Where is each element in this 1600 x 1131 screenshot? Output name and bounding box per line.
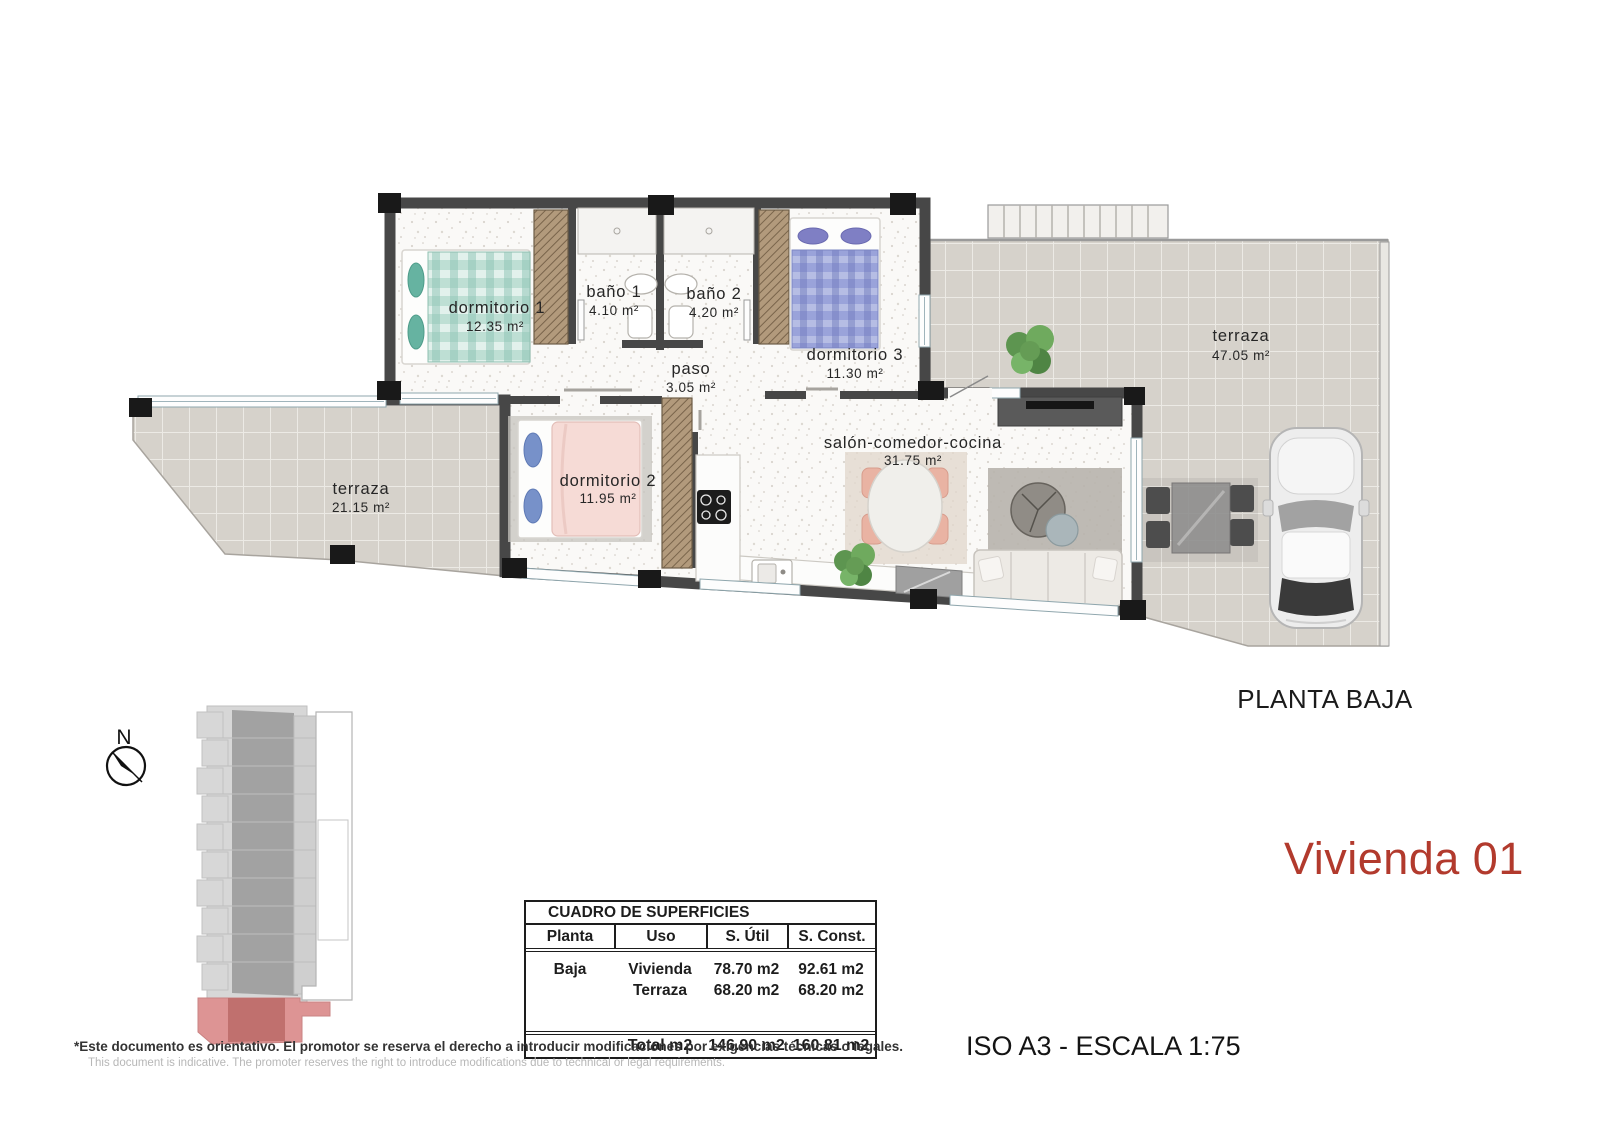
table-row: Baja Vivienda 78.70 m2 92.61 m2: [526, 959, 875, 980]
surface-table-body: Baja Vivienda 78.70 m2 92.61 m2 Terraza …: [526, 952, 875, 1031]
window-dorm1-bottom: [400, 393, 498, 404]
bed3-duvet: [792, 250, 878, 348]
compass: N: [107, 726, 145, 785]
outdoor-dining-set: [1140, 478, 1258, 562]
bed3-pillow-a: [798, 228, 828, 244]
bathroom1-door-leaf: [578, 300, 584, 340]
sofa-pillow-right: [1092, 556, 1117, 581]
stairs: [988, 205, 1168, 238]
room-area-dormitorio-3: 11.30 m²: [826, 366, 883, 381]
pillar: [129, 398, 152, 417]
wardrobe-dorm2: [662, 398, 692, 568]
siteplan-step: [202, 964, 228, 990]
floor-title: PLANTA BAJA: [1230, 684, 1420, 715]
table-row: Terraza 68.20 m2 68.20 m2: [526, 980, 875, 1001]
col-header-sutil: S. Útil: [706, 925, 787, 948]
cell-const: 92.61 m2: [787, 959, 875, 980]
cell-planta: [526, 980, 614, 1001]
siteplan-dark-column: [232, 710, 298, 996]
kitchen-sink-basin: [758, 564, 776, 583]
pillar: [910, 589, 937, 609]
siteplan-step: [197, 712, 223, 738]
outdoor-chair-2: [1146, 521, 1170, 548]
cell-util: 68.20 m2: [706, 980, 787, 1001]
site-plan: [197, 706, 352, 1044]
compass-north-label: N: [116, 726, 131, 749]
room-area-bano-1: 4.10 m²: [589, 303, 639, 318]
door-opening: [948, 388, 992, 399]
room-label-salon: salón-comedor-cocina: [824, 434, 1002, 452]
plant-leaf: [846, 557, 864, 575]
outdoor-chair-1: [1146, 487, 1170, 514]
dining-table: [868, 460, 942, 552]
pillar: [1120, 600, 1146, 620]
room-area-terraza-left: 21.15 m²: [332, 500, 390, 515]
siteplan-step: [197, 936, 223, 962]
siteplan-step: [197, 880, 223, 906]
car-hood: [1278, 438, 1354, 494]
room-area-salon: 31.75 m²: [884, 453, 942, 468]
disclaimer-spanish: *Este documento es orientativo. El promo…: [74, 1039, 903, 1054]
car-mirror-left: [1263, 500, 1273, 516]
surface-table-header: Planta Uso S. Útil S. Const.: [526, 925, 875, 948]
room-label-dormitorio-3: dormitorio 3: [807, 346, 904, 364]
unit-title: Vivienda 01: [1284, 833, 1524, 885]
room-label-terraza-left: terraza: [333, 480, 390, 498]
plant-leaf: [1020, 341, 1040, 361]
car-roof: [1282, 532, 1350, 578]
bed1-pillow-b: [408, 315, 424, 349]
siteplan-step: [202, 852, 228, 878]
pillar: [378, 193, 401, 213]
col-header-planta: Planta: [526, 925, 614, 948]
siteplan-step: [202, 908, 228, 934]
terrace-right-edge-wall: [1380, 242, 1389, 646]
car-mirror-right: [1359, 500, 1369, 516]
pillar: [918, 381, 944, 400]
pillar: [648, 195, 674, 215]
siteplan-right-column: [294, 716, 316, 994]
stairs-body: [988, 205, 1168, 238]
col-header-sconst: S. Const.: [787, 925, 875, 948]
siteplan-step: [202, 796, 228, 822]
pillar: [890, 193, 916, 215]
room-area-terraza-right: 47.05 m²: [1212, 348, 1270, 363]
col-header-uso: Uso: [614, 925, 706, 948]
room-area-dormitorio-2: 11.95 m²: [579, 491, 636, 506]
floor-plan-sheet: dormitorio 1 12.35 m² baño 1 4.10 m² bañ…: [0, 0, 1600, 1131]
shower-bath2: [664, 208, 754, 254]
outdoor-chair-3: [1230, 485, 1254, 512]
cell-uso: Terraza: [614, 980, 706, 1001]
outdoor-chair-4: [1230, 519, 1254, 546]
bed2-pillow-a: [524, 433, 542, 467]
terrace-left-floor: [133, 402, 505, 576]
pillar: [330, 545, 355, 564]
car-rear-window: [1278, 578, 1354, 616]
wardrobe-dorm1: [534, 210, 568, 344]
pillar: [377, 381, 401, 400]
sofa-pillow-left: [978, 556, 1004, 582]
compass-needle-tail: [112, 752, 142, 782]
side-table: [1046, 514, 1078, 546]
tv-screen: [1026, 401, 1094, 409]
scale-label: ISO A3 - ESCALA 1:75: [966, 1031, 1241, 1062]
room-label-dormitorio-1: dormitorio 1: [449, 299, 546, 317]
room-label-bano-1: baño 1: [586, 283, 641, 301]
room-label-dormitorio-2: dormitorio 2: [560, 472, 657, 490]
pillar: [638, 570, 661, 588]
bed-dorm3: [790, 218, 880, 350]
terrace-left: [133, 402, 505, 576]
siteplan-step: [197, 824, 223, 850]
room-label-paso: paso: [672, 360, 711, 378]
siteplan-step: [202, 740, 228, 766]
kitchen-faucet: [781, 570, 786, 575]
pillar: [502, 558, 527, 578]
room-area-bano-2: 4.20 m²: [689, 305, 739, 320]
siteplan-outline-notch: [318, 820, 348, 940]
window-salon-right: [1131, 438, 1142, 562]
window-dorm3-right: [919, 295, 930, 347]
cell-util: 78.70 m2: [706, 959, 787, 980]
car: [1263, 428, 1369, 628]
siteplan-unit-highlight-core: [228, 998, 285, 1042]
window-frame: [990, 388, 1020, 398]
shower-bath1: [578, 208, 656, 254]
bed1-pillow-a: [408, 263, 424, 297]
surface-table-title: CUADRO DE SUPERFICIES: [526, 902, 875, 925]
bed2-pillow-b: [524, 489, 542, 523]
bed3-pillow-b: [841, 228, 871, 244]
surface-table: CUADRO DE SUPERFICIES Planta Uso S. Útil…: [524, 900, 877, 1059]
room-area-paso: 3.05 m²: [666, 380, 716, 395]
window-salon-top: [990, 388, 1020, 398]
pillar: [1124, 387, 1145, 405]
bathroom2-door-leaf: [744, 300, 750, 340]
cell-const: 68.20 m2: [787, 980, 875, 1001]
cell-planta: Baja: [526, 959, 614, 980]
room-area-dormitorio-1: 12.35 m²: [466, 319, 524, 334]
wardrobe-dorm3: [759, 210, 789, 344]
window-terrace-left-top: [138, 396, 386, 407]
cell-uso: Vivienda: [614, 959, 706, 980]
room-label-bano-2: baño 2: [686, 285, 741, 303]
cooktop: [697, 490, 731, 524]
disclaimer-english: This document is indicative. The promote…: [88, 1057, 725, 1069]
siteplan-step: [197, 768, 223, 794]
room-label-terraza-right: terraza: [1213, 327, 1270, 345]
